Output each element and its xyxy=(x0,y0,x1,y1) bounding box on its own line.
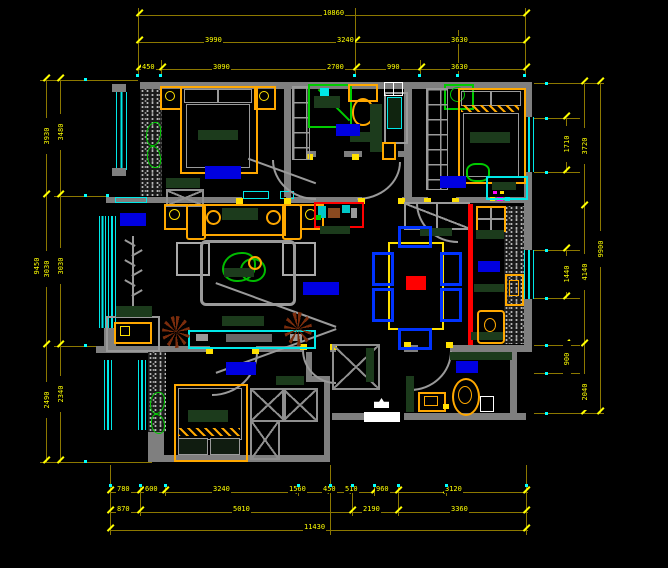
room-label-living xyxy=(303,282,339,295)
dim-label: 990 xyxy=(386,63,401,71)
bed-drawer xyxy=(178,438,208,455)
dim-label: 3630 xyxy=(450,36,469,44)
bed-pillow xyxy=(198,130,238,140)
table-plant-base xyxy=(224,268,254,277)
dim-ext-line xyxy=(534,345,580,346)
bed-headboard xyxy=(184,89,252,103)
aquarium-item xyxy=(328,208,340,218)
sofa-cushion xyxy=(222,208,258,220)
dim-label: 2040 xyxy=(581,374,589,410)
wall-bath2-right xyxy=(510,352,517,413)
room-label-balcony xyxy=(120,213,146,226)
dim-label: 3930 xyxy=(43,118,51,154)
dim-label: 9900 xyxy=(597,231,605,267)
wardrobe-cell xyxy=(250,388,286,422)
wall-cabinet xyxy=(243,191,269,199)
bath-cabinet xyxy=(370,104,382,152)
table-plant-pot xyxy=(248,256,262,270)
dim-ext-line xyxy=(534,172,580,173)
dining-chair xyxy=(398,328,432,350)
dim-label: 10860 xyxy=(322,9,345,17)
dining-chair xyxy=(440,288,462,322)
bed-headboard xyxy=(461,91,521,106)
dim-label: 450 xyxy=(141,63,156,71)
room-label-kitchen xyxy=(478,261,500,272)
dim-label: 3240 xyxy=(336,36,355,44)
washing-machine-knob xyxy=(120,326,130,336)
sofa-swirl xyxy=(206,210,221,225)
dim-label: 2190 xyxy=(362,505,381,513)
bath2-counter xyxy=(406,376,414,412)
dining-chair xyxy=(398,226,432,248)
wall-cabinet xyxy=(115,197,147,203)
dim-ext-line xyxy=(534,373,580,374)
wall-step xyxy=(324,382,330,456)
nightstand-lamp-icon xyxy=(259,91,269,101)
dim-label: 3990 xyxy=(204,36,223,44)
balcony-shelf xyxy=(116,306,152,317)
dim-label: 600 xyxy=(144,485,159,493)
dining-chair xyxy=(372,252,394,286)
dim-label: 3720 xyxy=(581,128,589,164)
window-balcony xyxy=(108,216,116,328)
cabinet-item xyxy=(196,334,208,341)
dim-label: 3240 xyxy=(212,485,231,493)
window xyxy=(116,92,127,170)
red-partition-line xyxy=(468,204,473,345)
dim-ext-line xyxy=(534,250,580,251)
paper-holder xyxy=(480,396,494,412)
room-label-bathroom1 xyxy=(336,124,360,136)
dim-ext-line xyxy=(330,465,331,535)
dim-label: 1710 xyxy=(563,126,571,162)
wardrobe-cell xyxy=(282,388,318,422)
bath-shelf xyxy=(314,96,340,108)
stove xyxy=(476,206,506,232)
sofa-swirl xyxy=(266,210,281,225)
room-label-bedroom3 xyxy=(226,362,256,375)
wall-cap xyxy=(112,168,126,176)
dim-label: 960 xyxy=(375,485,390,493)
potted-plant-icon xyxy=(162,316,190,348)
dim-ext-line xyxy=(54,196,108,197)
dim-label: 3480 xyxy=(57,114,65,150)
bed-blanket-fold xyxy=(178,428,240,436)
rug xyxy=(320,226,350,234)
dining-chair xyxy=(372,288,394,322)
dim-label: 3030 xyxy=(43,251,51,287)
bath-lower-cabinet xyxy=(382,142,396,160)
sofa-armrest xyxy=(282,204,302,240)
bed-pillow xyxy=(470,132,510,143)
door-hinge xyxy=(352,154,359,160)
wall-hall-bottom xyxy=(332,413,364,420)
dim-label: 5010 xyxy=(232,505,251,513)
kitchen-counter xyxy=(474,284,504,292)
dim-label: 2340 xyxy=(57,376,65,412)
bed-pillow xyxy=(188,410,228,422)
dim-ext-line xyxy=(534,118,580,119)
door-arc xyxy=(357,162,401,200)
dim-label: 3090 xyxy=(212,63,231,71)
shelf xyxy=(276,376,304,385)
window xyxy=(104,360,112,430)
hall-closet-back xyxy=(366,348,374,382)
wardrobe-cell xyxy=(250,420,280,460)
wall-shelf xyxy=(393,82,403,96)
bench-cushion xyxy=(166,178,200,188)
dim-label: 900 xyxy=(563,341,571,377)
fixture-mark xyxy=(443,404,449,409)
desk-item-dot xyxy=(493,191,497,194)
dim-label: 780 xyxy=(116,485,131,493)
window-balcony xyxy=(99,216,106,328)
nightstand-lamp-icon xyxy=(165,91,175,101)
desk-item-dot xyxy=(500,191,504,194)
room-label-bedroom2 xyxy=(440,176,466,188)
kitchen-counter xyxy=(476,230,504,239)
entry-arrow-icon xyxy=(374,398,389,408)
room-label-bedroom1 xyxy=(205,166,241,179)
dim-label: 2490 xyxy=(43,382,51,418)
bath2-counter xyxy=(450,352,512,360)
wall-bath2-top xyxy=(450,345,532,352)
toilet-seat xyxy=(458,386,472,404)
aquarium-item xyxy=(351,208,357,218)
tv-screen xyxy=(226,334,272,342)
dim-label: 3360 xyxy=(450,505,469,513)
wall-cap xyxy=(112,84,126,92)
aquarium-item xyxy=(342,205,350,213)
bed-blanket-fold xyxy=(461,105,519,112)
fridge-handle xyxy=(484,318,496,332)
dim-label: 3030 xyxy=(57,248,65,284)
wardrobe xyxy=(426,88,448,190)
side-table-lamp-icon xyxy=(169,209,180,220)
entry-threshold xyxy=(364,412,400,422)
aquarium-item xyxy=(316,215,321,220)
dim-label: 2700 xyxy=(326,63,345,71)
dim-ext-line xyxy=(534,298,580,299)
dim-label: 11430 xyxy=(303,523,326,531)
dim-line-bottom-1 xyxy=(110,492,528,493)
door-arc xyxy=(410,351,452,391)
washbasin-bowl xyxy=(424,396,438,406)
door-hinge xyxy=(446,342,453,348)
dining-table-center xyxy=(406,276,426,290)
potted-plant-icon xyxy=(284,312,312,346)
desk-items xyxy=(492,182,516,190)
dining-chair xyxy=(440,252,462,286)
kitchen-sink-bowl xyxy=(509,280,519,296)
washbasin-bowl xyxy=(387,97,402,129)
dim-label: 870 xyxy=(116,505,131,513)
room-label-bathroom2 xyxy=(456,361,478,373)
wall-cap xyxy=(148,432,164,456)
dim-label: 4140 xyxy=(581,254,589,290)
window xyxy=(138,360,146,430)
dim-label: 9450 xyxy=(33,248,41,284)
dim-ext-line xyxy=(40,80,138,81)
dim-label: 1440 xyxy=(563,256,571,292)
window xyxy=(524,250,534,299)
dim-label: 3630 xyxy=(450,63,469,71)
tv-rug xyxy=(222,316,264,326)
floor-plan-canvas[interactable]: 10860 3990 3240 3630 450 3090 2700 990 3… xyxy=(0,0,668,568)
bed-drawer xyxy=(210,438,240,455)
